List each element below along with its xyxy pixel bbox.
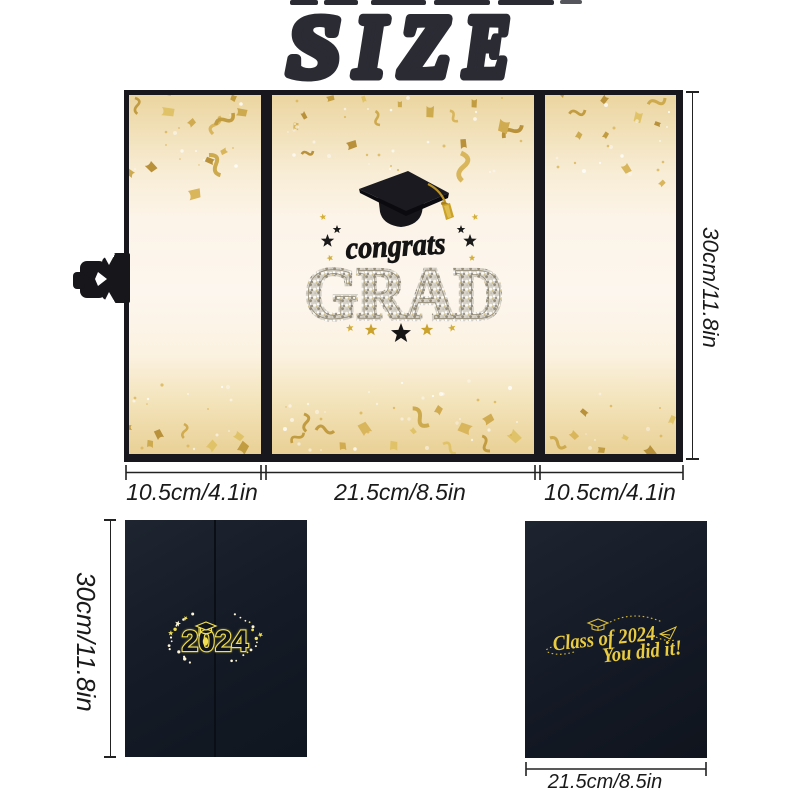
svg-text:S: S — [288, 0, 341, 90]
svg-text:Z: Z — [399, 0, 451, 90]
svg-text:E: E — [463, 0, 510, 90]
svg-text:2024: 2024 — [182, 625, 249, 658]
svg-text:I: I — [354, 0, 388, 90]
